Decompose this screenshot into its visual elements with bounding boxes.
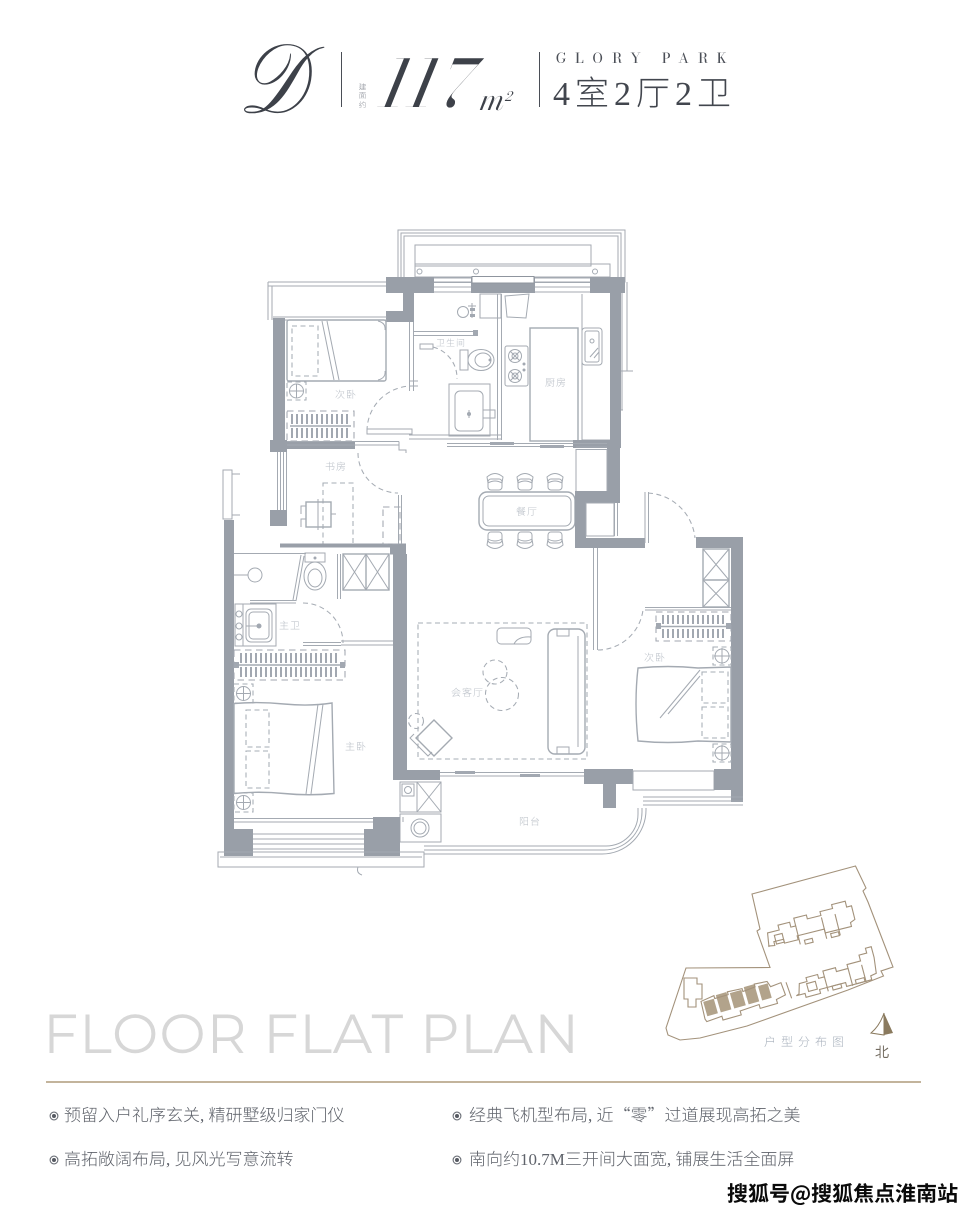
svg-text:户型分布图: 户型分布图 bbox=[764, 1033, 849, 1050]
svg-text:主卫: 主卫 bbox=[279, 617, 301, 632]
svg-text:主卧: 主卧 bbox=[345, 738, 367, 753]
svg-text:卫生间: 卫生间 bbox=[436, 336, 466, 349]
svg-text:餐厅: 餐厅 bbox=[516, 503, 538, 518]
svg-text:书房: 书房 bbox=[325, 458, 347, 473]
svg-text:会客厅: 会客厅 bbox=[451, 684, 484, 699]
svg-text:次卧: 次卧 bbox=[644, 649, 666, 664]
svg-text:北: 北 bbox=[875, 1042, 889, 1062]
svg-text:次卧: 次卧 bbox=[335, 386, 357, 401]
svg-text:阳台: 阳台 bbox=[519, 813, 541, 828]
svg-text:厨房: 厨房 bbox=[545, 374, 567, 389]
